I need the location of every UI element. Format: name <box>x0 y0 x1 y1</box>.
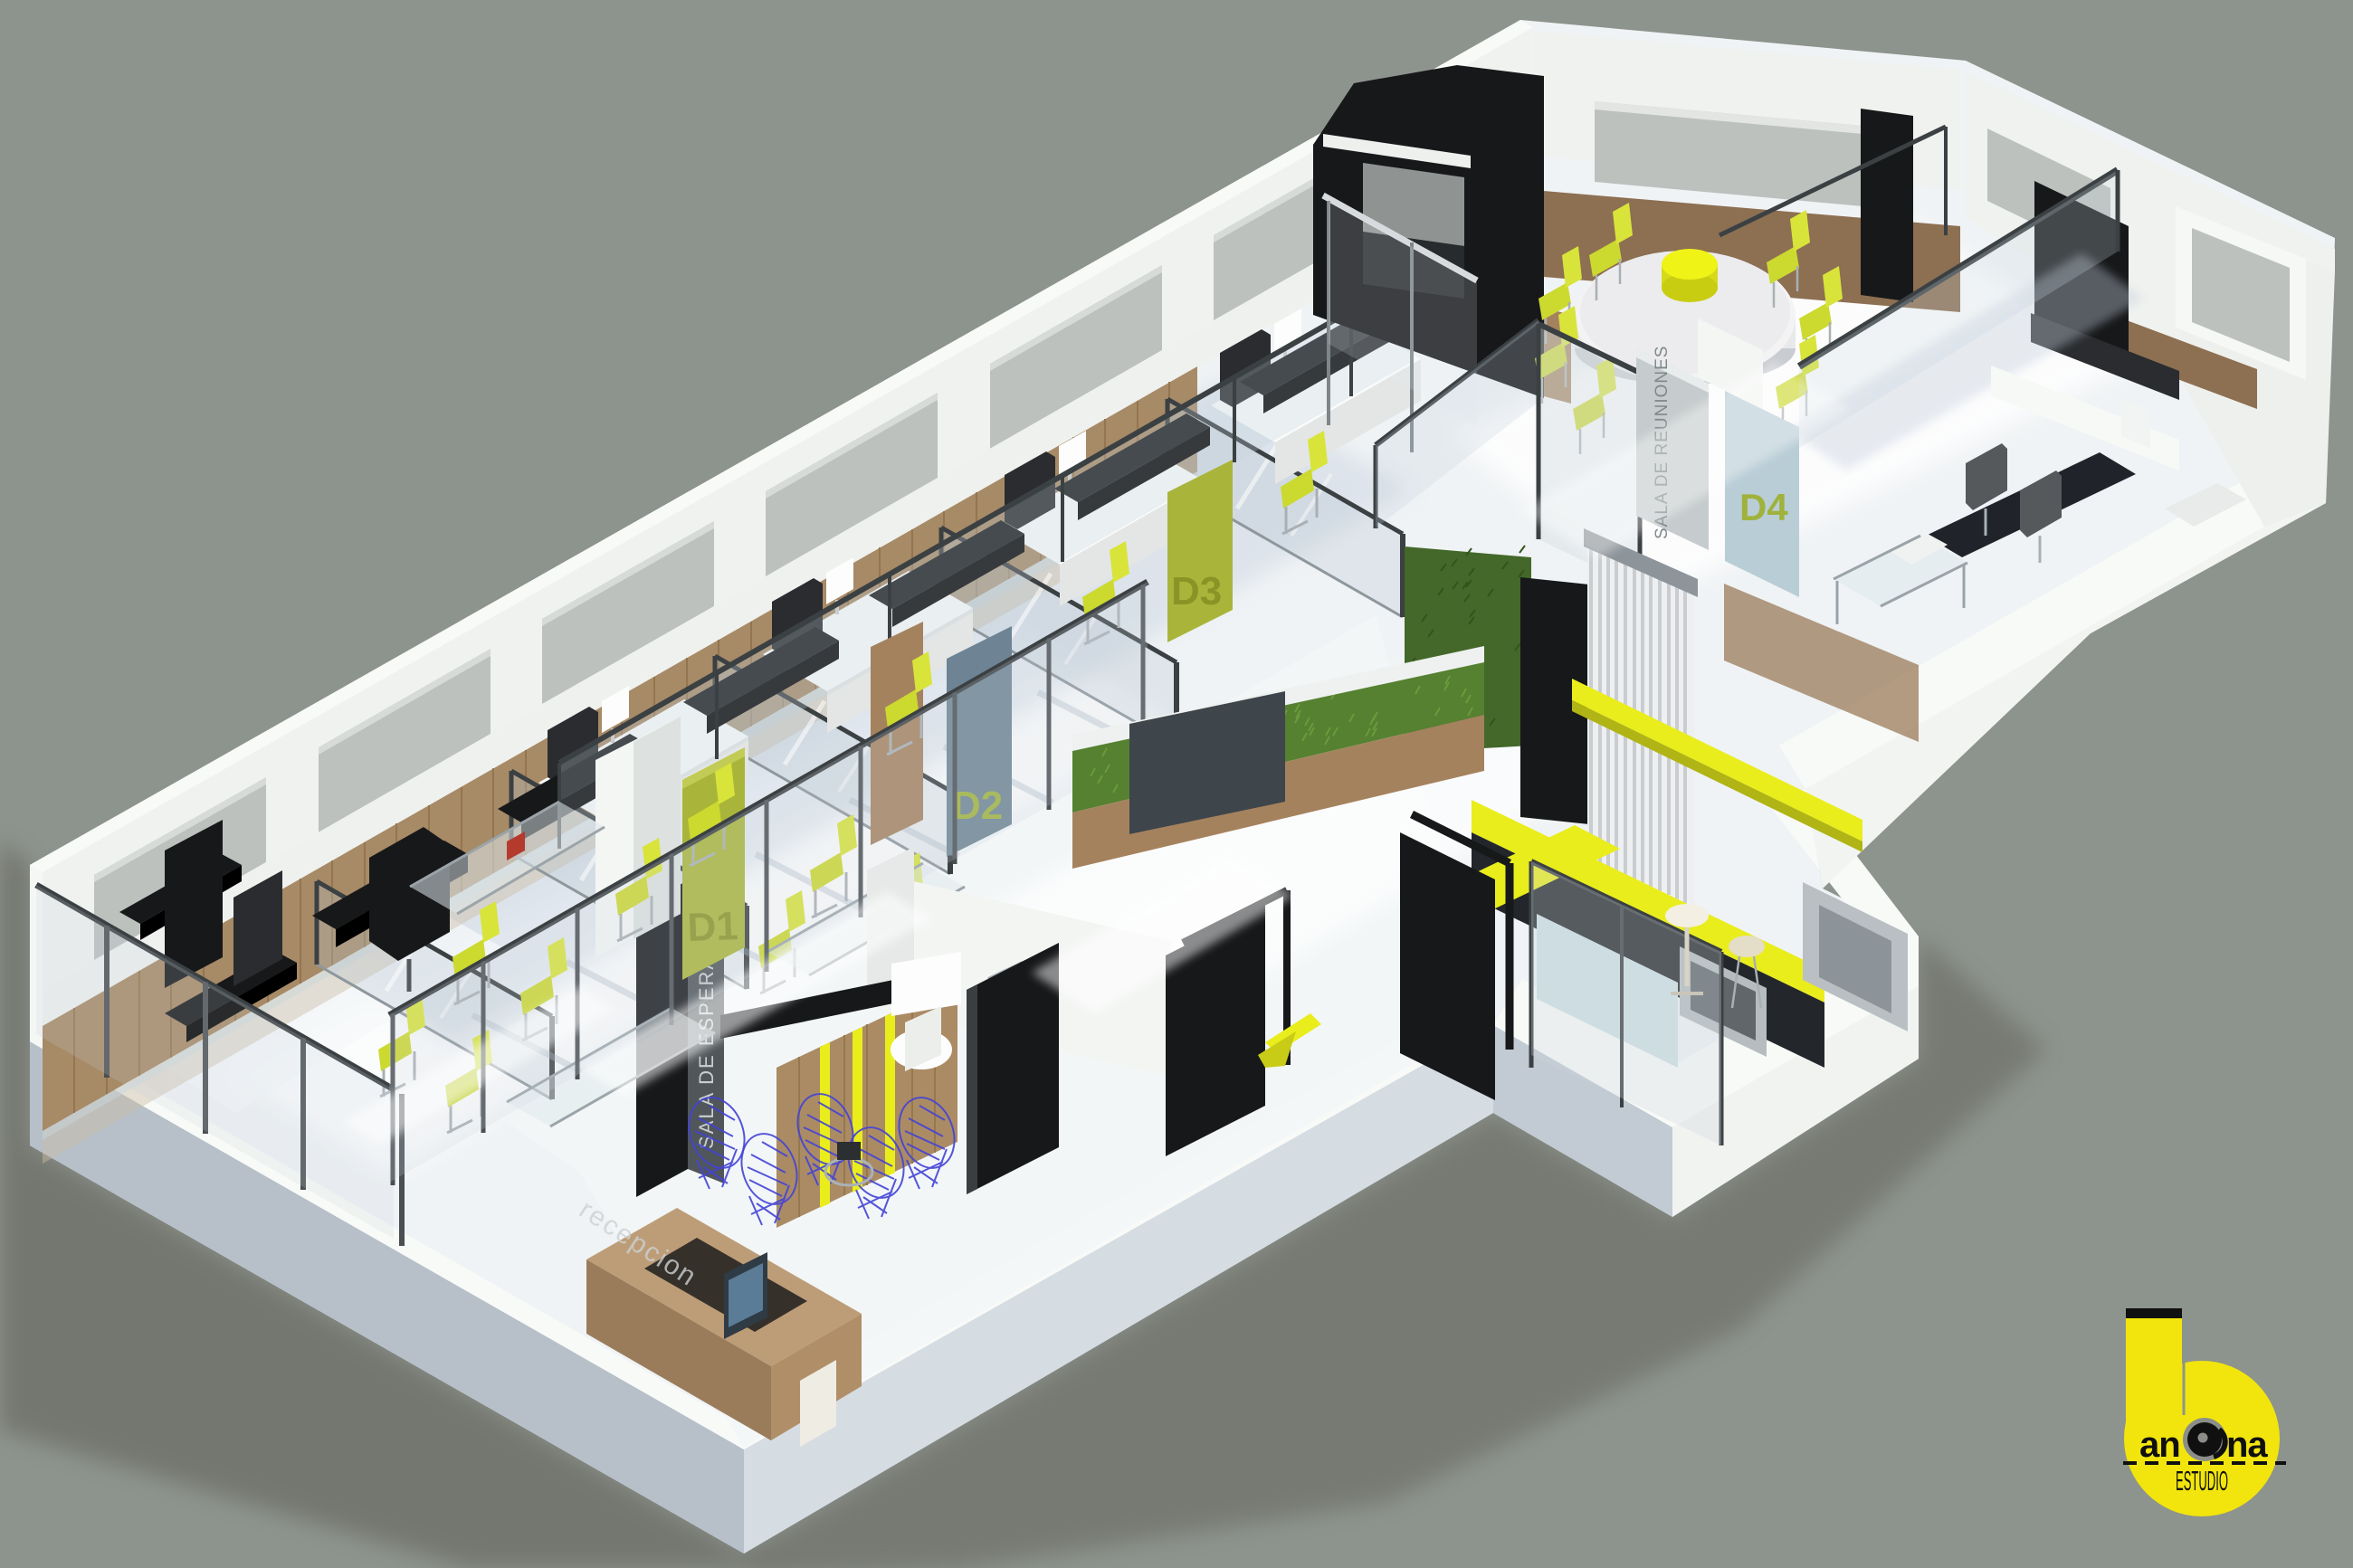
svg-text:ESTUDIO: ESTUDIO <box>2176 1465 2228 1497</box>
svg-text:D3: D3 <box>1171 569 1222 613</box>
svg-text:D4: D4 <box>1739 486 1788 528</box>
svg-text:na: na <box>2226 1425 2268 1465</box>
svg-text:an: an <box>2139 1425 2180 1465</box>
